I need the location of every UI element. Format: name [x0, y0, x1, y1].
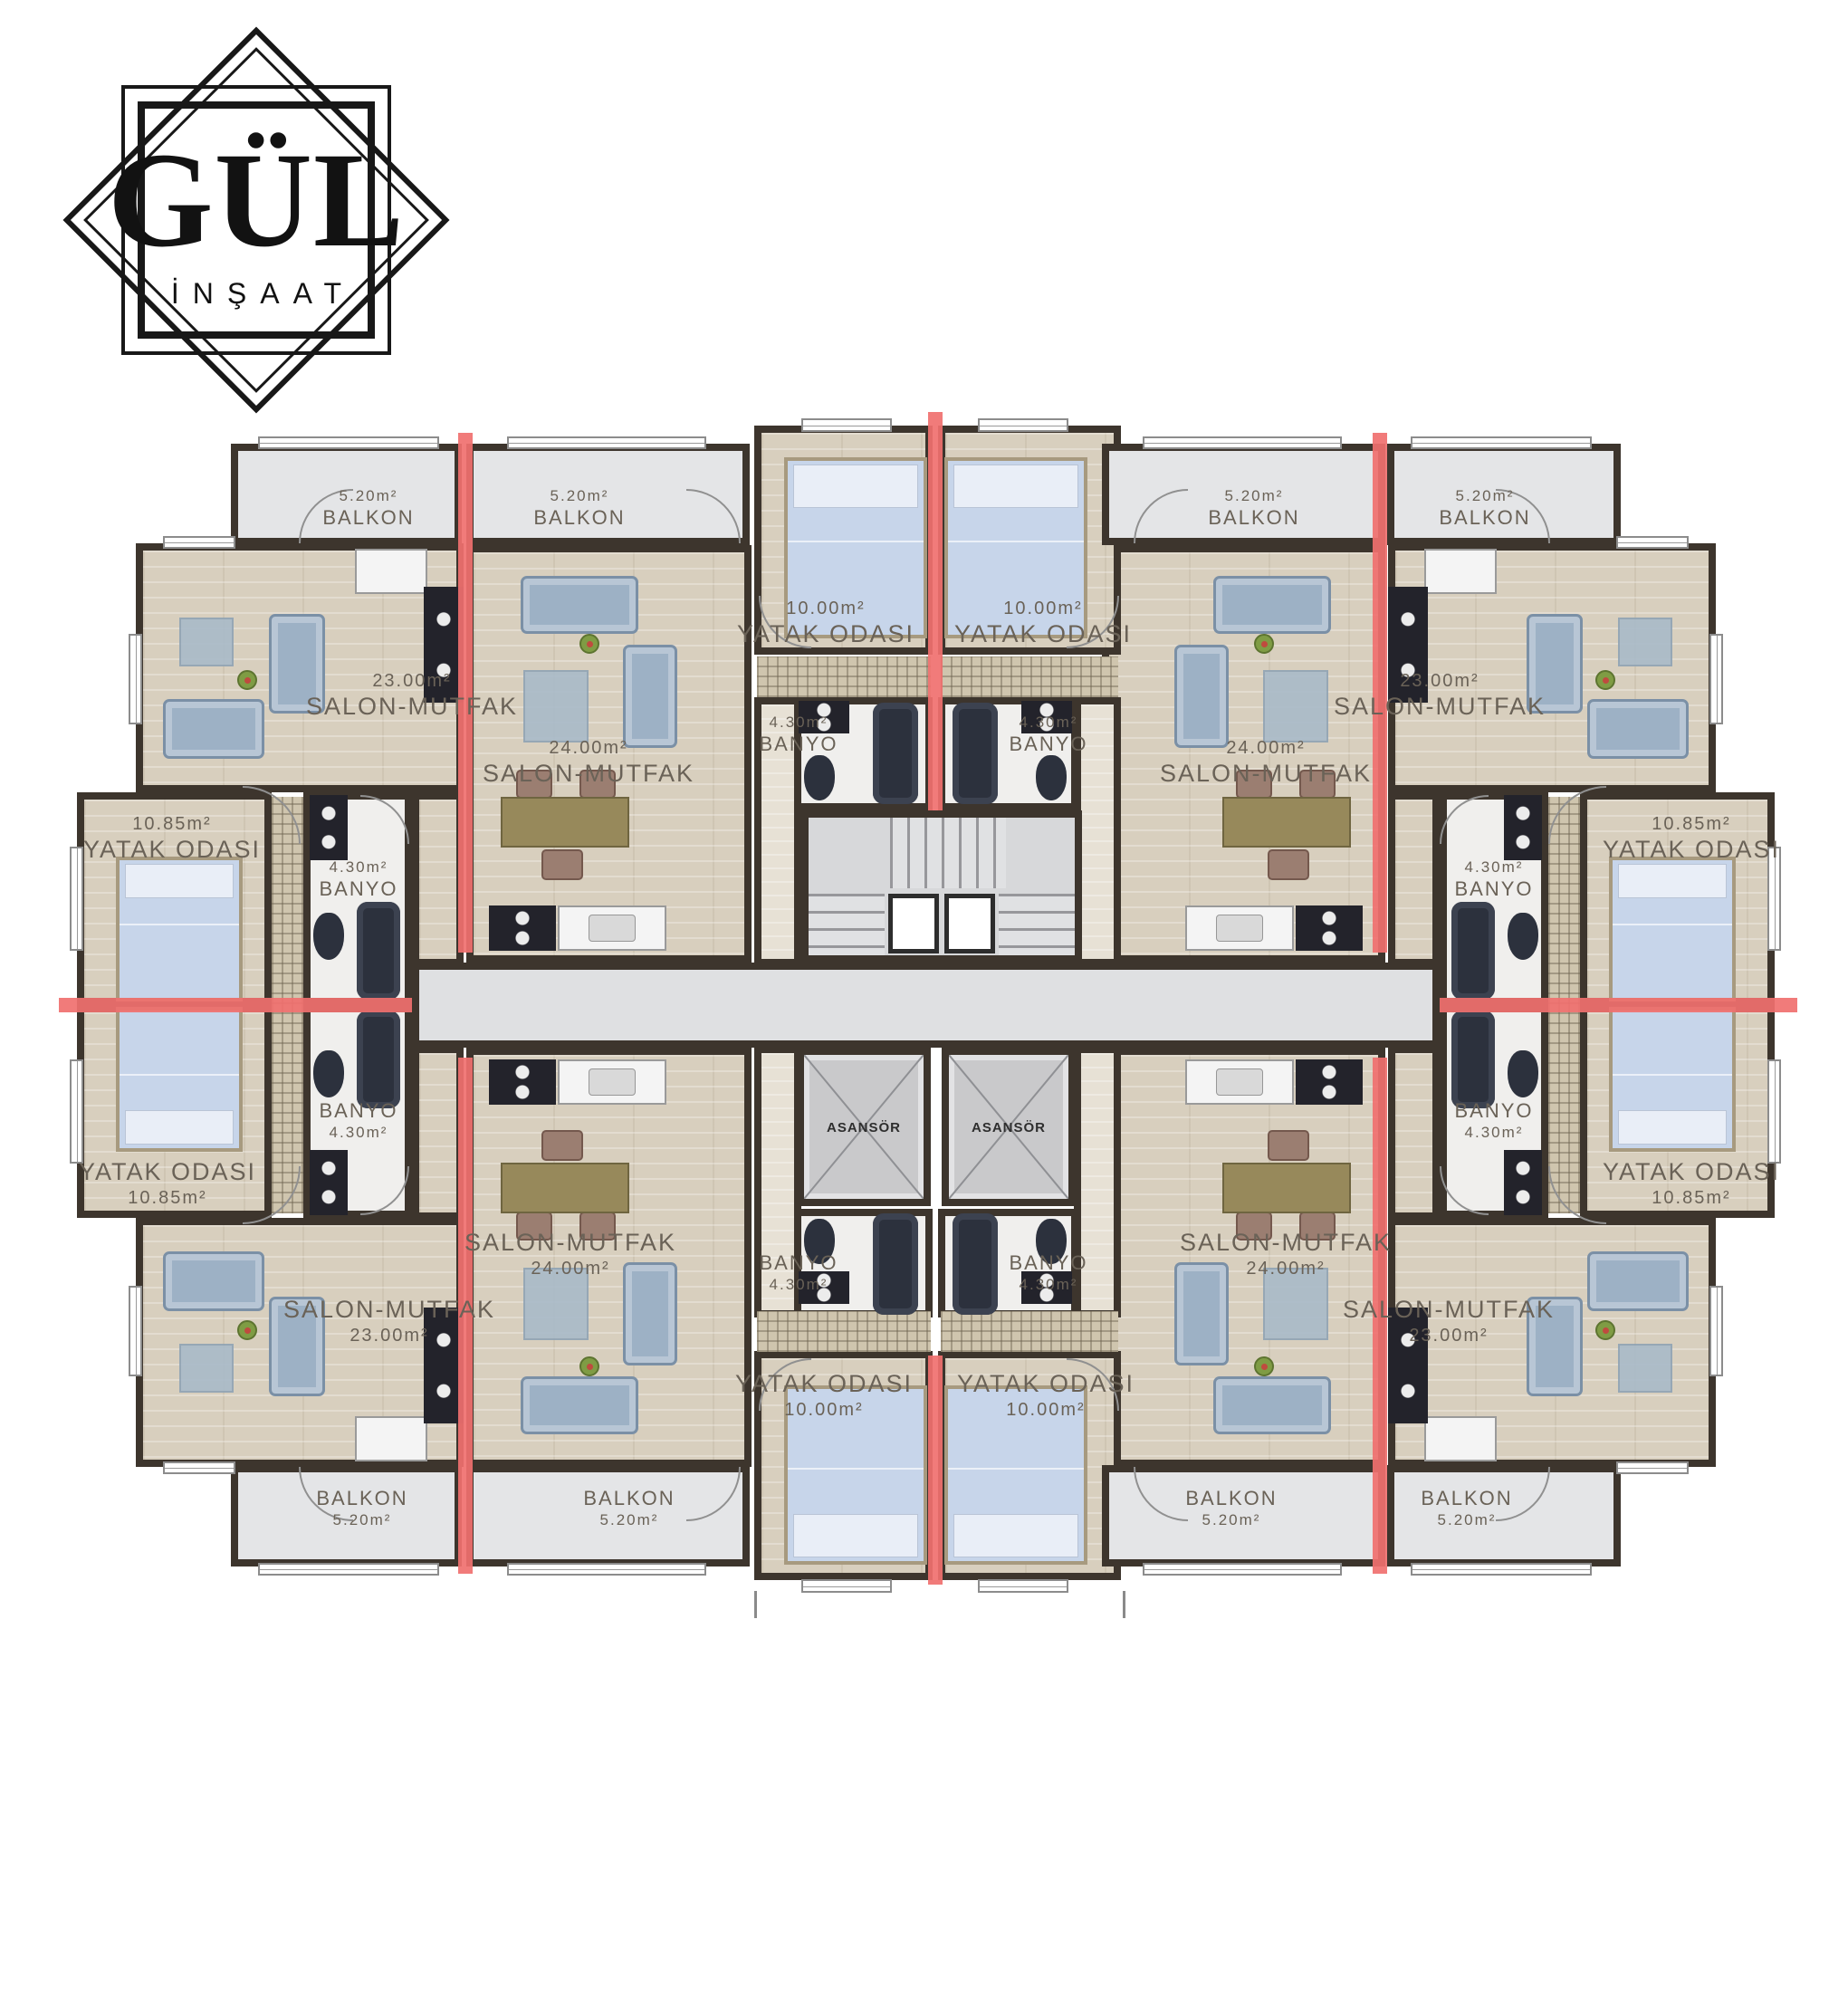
rug — [1618, 618, 1672, 666]
kitchen-sink — [1185, 905, 1294, 951]
plant-icon — [1254, 634, 1274, 654]
bath-counter — [310, 795, 348, 860]
kitchen-sink — [1185, 1059, 1294, 1105]
window — [1411, 1563, 1592, 1576]
room-label-bedroom: 10.00m²YATAK ODASI — [954, 598, 1132, 649]
room-label-bathroom: BANYO4.30m² — [1009, 1251, 1087, 1295]
sofa — [623, 645, 677, 748]
kitchen-stove — [1296, 905, 1363, 951]
room-label-bathroom: BANYO4.30m² — [319, 1099, 397, 1143]
room-hall-bottom-right — [1388, 1046, 1440, 1220]
window — [258, 436, 439, 449]
sofa — [1213, 1376, 1331, 1434]
window — [978, 1579, 1068, 1593]
room-label-salon: SALON-MUTFAK24.00m² — [464, 1228, 676, 1279]
room-label-salon: SALON-MUTFAK23.00m² — [283, 1295, 495, 1346]
room-label-balcony: BALKON5.20m² — [1421, 1487, 1512, 1530]
window — [1709, 1286, 1723, 1376]
fire-divider-line — [59, 998, 412, 1012]
window — [1143, 436, 1342, 449]
stair-landing — [944, 894, 995, 953]
kitchen-stove — [489, 905, 556, 951]
window — [163, 536, 235, 549]
window — [801, 1579, 892, 1593]
staircase — [801, 810, 1082, 963]
bathtub — [357, 902, 400, 1000]
wardrobe-center-top-left — [757, 656, 931, 697]
room-hall-top-left — [412, 792, 464, 966]
toilet — [313, 913, 344, 960]
room-label-salon: 23.00m²SALON-MUTFAK — [1334, 670, 1546, 722]
bath-counter — [1504, 1150, 1542, 1215]
dimension-tick — [1123, 1591, 1125, 1618]
room-label-salon: 24.00m²SALON-MUTFAK — [1160, 737, 1372, 789]
rug — [1618, 1344, 1672, 1393]
bath-counter — [310, 1150, 348, 1215]
room-label-bathroom: BANYO4.30m² — [1454, 1099, 1533, 1143]
room-hall-top-right — [1388, 792, 1440, 966]
room-label-bathroom: 4.30m²BANYO — [759, 714, 838, 757]
window — [70, 847, 83, 951]
bed — [116, 1007, 243, 1152]
kitchen-cabinet — [355, 1416, 427, 1461]
plant-icon — [579, 634, 599, 654]
rug — [179, 618, 234, 666]
logo-title: GÜL — [64, 132, 448, 268]
room-label-bathroom: 4.30m²BANYO — [1454, 858, 1533, 902]
chair — [1268, 1130, 1309, 1161]
rug — [1263, 670, 1328, 743]
room-label-bathroom: 4.30m²BANYO — [319, 858, 397, 902]
window — [801, 418, 892, 432]
sofa — [1213, 576, 1331, 634]
bed — [116, 857, 243, 1001]
window — [1616, 536, 1689, 549]
elevator-label: ASANSÖR — [804, 1120, 924, 1135]
plant-icon — [1595, 1320, 1615, 1340]
room-label-bedroom: 10.85m²YATAK ODASI — [1603, 813, 1780, 865]
stair-landing — [888, 894, 939, 953]
sofa — [1587, 699, 1689, 759]
window — [258, 1563, 439, 1576]
room-label-salon: 24.00m²SALON-MUTFAK — [483, 737, 694, 789]
bathtub — [357, 1011, 400, 1108]
room-label-salon: 23.00m²SALON-MUTFAK — [306, 670, 518, 722]
bed — [1609, 857, 1736, 1001]
corridor — [412, 963, 1440, 1048]
fire-divider-line — [928, 412, 943, 810]
plant-icon — [237, 670, 257, 690]
room-label-bedroom: YATAK ODASI10.85m² — [1603, 1157, 1780, 1209]
door-arc — [1548, 786, 1606, 844]
dining-table — [501, 797, 629, 848]
kitchen-sink — [558, 1059, 666, 1105]
dining-table — [1222, 797, 1351, 848]
toilet — [1508, 913, 1538, 960]
floor-plan-sheet: GÜL İNŞAAT — [0, 0, 1848, 2012]
window — [70, 1059, 83, 1164]
rug — [523, 670, 589, 743]
kitchen-sink — [558, 905, 666, 951]
plant-icon — [1254, 1356, 1274, 1376]
sofa — [1174, 645, 1229, 748]
room-label-balcony: BALKON5.20m² — [316, 1487, 407, 1530]
sofa — [163, 1251, 264, 1311]
room-label-balcony: 5.20m²BALKON — [322, 487, 414, 531]
room-label-salon: SALON-MUTFAK23.00m² — [1343, 1295, 1555, 1346]
stair-run-icon — [999, 894, 1075, 955]
fire-divider-line — [1440, 998, 1797, 1012]
window — [163, 1461, 235, 1474]
plant-icon — [1595, 670, 1615, 690]
room-label-bedroom: YATAK ODASI10.00m² — [957, 1369, 1135, 1421]
dimension-tick — [754, 1591, 757, 1618]
sofa — [1587, 1251, 1689, 1311]
window — [129, 1286, 142, 1376]
bath-counter — [1504, 795, 1542, 860]
plant-icon — [579, 1356, 599, 1376]
kitchen-stove — [1296, 1059, 1363, 1105]
room-label-balcony: 5.20m²BALKON — [1208, 487, 1299, 531]
toilet — [804, 755, 835, 800]
wardrobe-center-bottom-right — [941, 1311, 1118, 1352]
window — [1411, 436, 1592, 449]
window — [978, 418, 1068, 432]
room-label-bedroom: YATAK ODASI10.00m² — [735, 1369, 913, 1421]
stair-run-icon — [809, 894, 885, 955]
dining-table — [1222, 1163, 1351, 1213]
bathtub — [1451, 902, 1495, 1000]
room-label-bathroom: 4.30m²BANYO — [1009, 714, 1087, 757]
elevator-left: ASANSÖR — [797, 1048, 931, 1206]
fire-divider-line — [928, 1356, 943, 1585]
window — [1709, 634, 1723, 724]
window — [1767, 1059, 1781, 1164]
room-hall-bottom-left — [412, 1046, 464, 1220]
dining-table — [501, 1163, 629, 1213]
window — [129, 634, 142, 724]
bathtub — [1451, 1011, 1495, 1108]
company-logo: GÜL İNŞAAT — [64, 25, 448, 415]
kitchen-stove — [489, 1059, 556, 1105]
chair — [541, 1130, 583, 1161]
sofa — [521, 576, 638, 634]
bed — [1609, 1007, 1736, 1152]
bathtub — [873, 703, 918, 804]
room-label-bedroom: YATAK ODASI10.85m² — [79, 1157, 256, 1209]
room-label-balcony: 5.20m²BALKON — [533, 487, 625, 531]
bathtub — [873, 1213, 918, 1315]
room-label-salon: SALON-MUTFAK24.00m² — [1180, 1228, 1392, 1279]
window — [1616, 1461, 1689, 1474]
wardrobe-center-bottom-left — [757, 1311, 931, 1352]
kitchen-cabinet — [355, 549, 427, 594]
chair — [541, 849, 583, 880]
sofa — [521, 1376, 638, 1434]
chair — [1268, 849, 1309, 880]
bathtub — [953, 703, 998, 804]
wardrobe-center-top-right — [941, 656, 1118, 697]
toilet — [1036, 755, 1067, 800]
window — [507, 1563, 706, 1576]
elevator-label: ASANSÖR — [949, 1120, 1068, 1135]
toilet — [313, 1050, 344, 1097]
plant-icon — [237, 1320, 257, 1340]
window — [1143, 1563, 1342, 1576]
elevator-right: ASANSÖR — [942, 1048, 1076, 1206]
kitchen-cabinet — [1424, 1416, 1497, 1461]
sofa — [163, 699, 264, 759]
room-label-bedroom: 10.00m²YATAK ODASI — [737, 598, 914, 649]
room-label-balcony: BALKON5.20m² — [1185, 1487, 1277, 1530]
bathtub — [953, 1213, 998, 1315]
stair-run-icon — [890, 818, 1006, 888]
room-label-bedroom: 10.85m²YATAK ODASI — [83, 813, 261, 865]
rug — [179, 1344, 234, 1393]
kitchen-cabinet — [1424, 549, 1497, 594]
window — [507, 436, 706, 449]
logo-subtitle: İNŞAAT — [64, 277, 448, 311]
room-label-balcony: 5.20m²BALKON — [1439, 487, 1530, 531]
door-arc — [1548, 1166, 1606, 1224]
room-label-balcony: BALKON5.20m² — [583, 1487, 675, 1530]
toilet — [1508, 1050, 1538, 1097]
room-label-bathroom: BANYO4.30m² — [759, 1251, 838, 1295]
